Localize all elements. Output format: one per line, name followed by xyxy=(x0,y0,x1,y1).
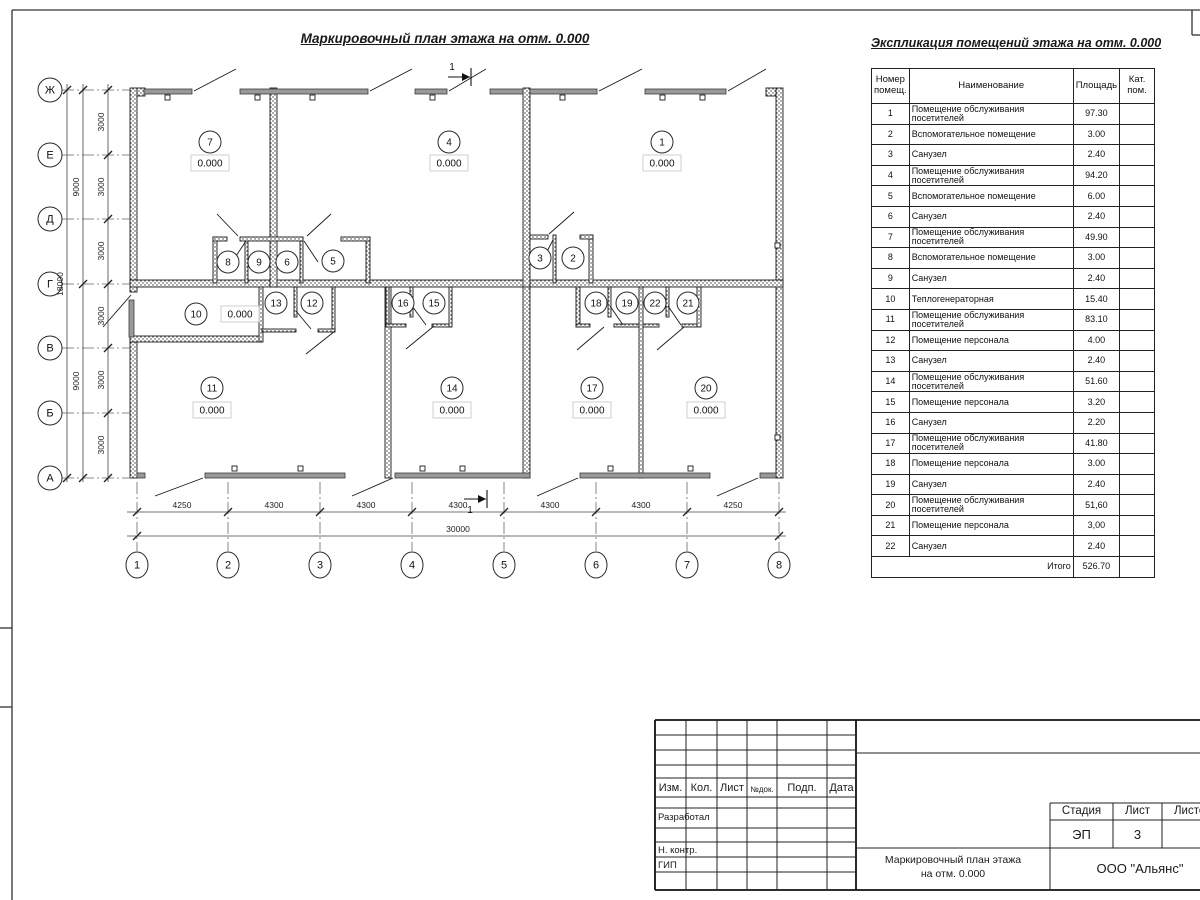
room-number-cell: 15 xyxy=(872,392,910,413)
room-area-cell: 2.40 xyxy=(1073,268,1119,289)
elevation-label: 0.000 xyxy=(649,159,674,170)
wall xyxy=(262,329,296,332)
titleblock-nkontr: Н. контр. xyxy=(658,845,697,856)
door-leaf xyxy=(103,295,131,327)
column-header-category: Кат. пом. xyxy=(1120,69,1155,104)
room-category-cell xyxy=(1120,454,1155,475)
schedule-row: 19Санузел2.40 xyxy=(872,474,1155,495)
schedule-row: 17Помещение обслуживания посетителей41.8… xyxy=(872,433,1155,454)
room-area-cell: 4.00 xyxy=(1073,330,1119,351)
door-leaf xyxy=(657,327,684,350)
wall xyxy=(259,287,263,342)
room-name-cell: Санузел xyxy=(909,145,1073,166)
wall xyxy=(523,287,530,478)
room-number-cell: 9 xyxy=(872,268,910,289)
dimension-label: 3000 xyxy=(96,112,106,131)
wall xyxy=(240,237,303,241)
room-name-cell: Помещение обслуживания посетителей xyxy=(909,227,1073,248)
column-header-name: Наименование xyxy=(909,69,1073,104)
company-name: ООО "Альянс" xyxy=(1050,861,1200,876)
total-value: 526.70 xyxy=(1073,557,1119,578)
room-category-cell xyxy=(1120,145,1155,166)
mullion xyxy=(608,466,613,471)
elevation-label: 0.000 xyxy=(439,406,464,417)
schedule-row: 13Санузел2.40 xyxy=(872,351,1155,372)
mullion xyxy=(255,95,260,100)
window-glazing xyxy=(580,473,710,478)
titleblock-data: Дата xyxy=(827,782,856,794)
dimension-label: 4300 xyxy=(632,500,651,510)
wall xyxy=(580,235,593,239)
elevation-label: 0.000 xyxy=(197,159,222,170)
room-name-cell: Помещение обслуживания посетителей xyxy=(909,371,1073,392)
mullion xyxy=(660,95,665,100)
schedule-row: 8Вспомогательное помещение3.00 xyxy=(872,248,1155,269)
room-number-cell: 21 xyxy=(872,515,910,536)
door-leaf xyxy=(599,69,642,91)
room-area-cell: 3.20 xyxy=(1073,392,1119,413)
schedule-row: 18Помещение персонала3.00 xyxy=(872,454,1155,475)
schedule-row: 6Санузел2.40 xyxy=(872,206,1155,227)
axis-label: 2 xyxy=(225,560,231,572)
room-area-cell: 2.20 xyxy=(1073,412,1119,433)
door-leaf xyxy=(217,214,238,236)
room-name-cell: Вспомогательное помещение xyxy=(909,248,1073,269)
room-number-cell: 7 xyxy=(872,227,910,248)
mullion xyxy=(430,95,435,100)
dimension-label: 4250 xyxy=(173,500,192,510)
schedule-total-row: Итого 526.70 xyxy=(872,557,1155,578)
room-number: 17 xyxy=(586,384,598,395)
wall xyxy=(449,287,452,327)
door-leaf xyxy=(307,214,331,236)
dimension-label: 18000 xyxy=(55,272,65,296)
dimension-label: 4300 xyxy=(265,500,284,510)
wall xyxy=(614,324,639,327)
schedule-row: 15Помещение персонала3.20 xyxy=(872,392,1155,413)
column-header-number: Номер помещ. xyxy=(872,69,910,104)
door-leaf xyxy=(412,306,426,325)
room-number-cell: 4 xyxy=(872,165,910,186)
schedule-row: 14Помещение обслуживания посетителей51.6… xyxy=(872,371,1155,392)
wall xyxy=(245,237,248,283)
axis-label: А xyxy=(46,473,54,485)
room-category-cell xyxy=(1120,474,1155,495)
window-glazing xyxy=(395,473,530,478)
titleblock-ndok: №док. xyxy=(747,785,777,794)
titleblock-podp: Подп. xyxy=(777,782,827,794)
room-name-cell: Санузел xyxy=(909,351,1073,372)
room-number: 5 xyxy=(330,257,336,268)
dimension-label: 4300 xyxy=(541,500,560,510)
mullion xyxy=(688,466,693,471)
room-name-cell: Помещение персонала xyxy=(909,392,1073,413)
titleblock-list: Лист xyxy=(717,782,747,794)
schedule-row: 7Помещение обслуживания посетителей49.90 xyxy=(872,227,1155,248)
door-leaf xyxy=(549,212,574,234)
room-area-cell: 41.80 xyxy=(1073,433,1119,454)
window-glazing xyxy=(415,89,447,94)
window-glazing xyxy=(144,89,192,94)
axis-label: 6 xyxy=(593,560,599,572)
axis-label: Б xyxy=(46,408,53,420)
schedule-row: 11Помещение обслуживания посетителей83.1… xyxy=(872,309,1155,330)
mullion xyxy=(232,466,237,471)
wall xyxy=(294,287,297,317)
elevation-label: 0.000 xyxy=(693,406,718,417)
room-area-cell: 51.60 xyxy=(1073,371,1119,392)
room-area-cell: 83.10 xyxy=(1073,309,1119,330)
room-number-cell: 19 xyxy=(872,474,910,495)
room-number-cell: 6 xyxy=(872,206,910,227)
room-name-cell: Санузел xyxy=(909,412,1073,433)
room-area-cell: 94.20 xyxy=(1073,165,1119,186)
room-category-cell xyxy=(1120,351,1155,372)
room-schedule-table: Номер помещ. Наименование Площадь Кат. п… xyxy=(871,68,1155,578)
mullion xyxy=(560,95,565,100)
wall xyxy=(130,337,137,478)
wall xyxy=(639,287,643,478)
dimension-label: 3000 xyxy=(96,306,106,325)
window-glazing xyxy=(530,89,597,94)
mullion xyxy=(775,243,780,248)
wall xyxy=(213,237,217,283)
plan-title: Маркировочный план этажа на отм. 0.000 xyxy=(250,31,640,46)
room-area-cell: 2.40 xyxy=(1073,206,1119,227)
axis-label: Ж xyxy=(45,85,55,97)
mullion xyxy=(700,95,705,100)
room-category-cell xyxy=(1120,495,1155,516)
room-area-cell: 2.40 xyxy=(1073,536,1119,557)
room-category-cell xyxy=(1120,371,1155,392)
mullion xyxy=(310,95,315,100)
room-number: 12 xyxy=(306,299,318,310)
room-number-cell: 10 xyxy=(872,289,910,310)
door-leaf xyxy=(717,478,758,496)
room-number: 14 xyxy=(446,384,458,395)
schedule-row: 22Санузел2.40 xyxy=(872,536,1155,557)
door-leaf xyxy=(577,327,604,350)
elevation-label: 0.000 xyxy=(227,310,252,321)
room-number: 18 xyxy=(590,299,602,310)
door-leaf xyxy=(155,478,203,496)
room-number-cell: 11 xyxy=(872,309,910,330)
axis-label: 5 xyxy=(501,560,507,572)
axis-label: 3 xyxy=(317,560,323,572)
room-area-cell: 3,00 xyxy=(1073,515,1119,536)
window-glazing xyxy=(205,473,345,478)
wall xyxy=(318,329,335,332)
door-leaf xyxy=(352,478,393,496)
room-area-cell: 3.00 xyxy=(1073,124,1119,145)
room-area-cell: 49.90 xyxy=(1073,227,1119,248)
door-leaf xyxy=(370,69,412,91)
room-number: 22 xyxy=(649,299,661,310)
room-number-cell: 14 xyxy=(872,371,910,392)
room-number: 20 xyxy=(700,384,712,395)
wall xyxy=(432,324,449,327)
room-number: 10 xyxy=(190,310,202,321)
door-leaf xyxy=(306,331,335,354)
dimension-label: 3000 xyxy=(96,370,106,389)
wall xyxy=(766,88,776,96)
schedule-row: 10Теплогенераторная15.40 xyxy=(872,289,1155,310)
room-name-cell: Санузел xyxy=(909,206,1073,227)
dimension-label: 9000 xyxy=(71,371,81,390)
room-area-cell: 97.30 xyxy=(1073,104,1119,125)
wall xyxy=(386,287,389,327)
wall xyxy=(341,237,370,241)
room-name-cell: Санузел xyxy=(909,536,1073,557)
wall xyxy=(553,235,556,283)
wall xyxy=(270,88,277,287)
door-leaf xyxy=(406,326,434,349)
room-number: 9 xyxy=(256,258,262,269)
schedule-row: 9Санузел2.40 xyxy=(872,268,1155,289)
room-category-cell xyxy=(1120,186,1155,207)
schedule-row: 5Вспомогательное помещение6.00 xyxy=(872,186,1155,207)
dimension-label: 30000 xyxy=(446,524,470,534)
section-mark-arrow xyxy=(462,73,470,81)
room-category-cell xyxy=(1120,309,1155,330)
stage-value: ЭП xyxy=(1050,827,1113,842)
room-category-cell xyxy=(1120,515,1155,536)
wall xyxy=(682,324,697,327)
schedule-row: 21Помещение персонала3,00 xyxy=(872,515,1155,536)
titleblock-gip: ГИП xyxy=(658,860,677,871)
wall xyxy=(576,324,590,327)
dimension-label: 4300 xyxy=(357,500,376,510)
room-number: 2 xyxy=(570,254,576,265)
room-number-cell: 13 xyxy=(872,351,910,372)
room-number-cell: 2 xyxy=(872,124,910,145)
room-number-cell: 3 xyxy=(872,145,910,166)
elevation-label: 0.000 xyxy=(436,159,461,170)
room-number-cell: 17 xyxy=(872,433,910,454)
room-number-cell: 22 xyxy=(872,536,910,557)
room-name-cell: Вспомогательное помещение xyxy=(909,124,1073,145)
room-number-cell: 8 xyxy=(872,248,910,269)
wall xyxy=(608,287,611,317)
schedule-row: 16Санузел2.20 xyxy=(872,412,1155,433)
room-number: 11 xyxy=(207,384,218,395)
room-number: 13 xyxy=(270,299,282,310)
door-leaf xyxy=(194,69,236,91)
room-category-cell xyxy=(1120,104,1155,125)
window-glazing xyxy=(490,89,523,94)
room-category-cell xyxy=(1120,433,1155,454)
room-number: 21 xyxy=(682,299,694,310)
axis-label: Д xyxy=(46,214,54,226)
room-number: 3 xyxy=(537,254,543,265)
axis-label: 1 xyxy=(134,560,140,572)
room-number-cell: 18 xyxy=(872,454,910,475)
titleblock-izm: Изм. xyxy=(655,782,686,794)
drawing-sheet: { "plan": { "title": "Маркировочный план… xyxy=(0,0,1200,900)
mullion xyxy=(165,95,170,100)
room-number-cell: 12 xyxy=(872,330,910,351)
schedule-header-row: Номер помещ. Наименование Площадь Кат. п… xyxy=(872,69,1155,104)
door-leaf xyxy=(304,241,318,262)
room-area-cell: 2.40 xyxy=(1073,145,1119,166)
doc-title-line2: на отм. 0.000 xyxy=(856,868,1050,880)
room-area-cell: 15.40 xyxy=(1073,289,1119,310)
room-number: 6 xyxy=(284,258,290,269)
room-name-cell: Помещение обслуживания посетителей xyxy=(909,433,1073,454)
total-category-cell xyxy=(1120,557,1155,578)
room-category-cell xyxy=(1120,268,1155,289)
room-category-cell xyxy=(1120,248,1155,269)
room-number-cell: 20 xyxy=(872,495,910,516)
section-mark-arrow xyxy=(478,495,486,503)
room-name-cell: Санузел xyxy=(909,268,1073,289)
room-name-cell: Помещение обслуживания посетителей xyxy=(909,165,1073,186)
room-category-cell xyxy=(1120,536,1155,557)
room-category-cell xyxy=(1120,392,1155,413)
wall xyxy=(130,280,783,287)
schedule-title: Экспликация помещений этажа на отм. 0.00… xyxy=(871,36,1146,50)
room-name-cell: Помещение персонала xyxy=(909,454,1073,475)
dimension-label: 3000 xyxy=(96,241,106,260)
room-name-cell: Санузел xyxy=(909,474,1073,495)
room-name-cell: Помещение обслуживания посетителей xyxy=(909,309,1073,330)
axis-label: 8 xyxy=(776,560,782,572)
mullion xyxy=(298,466,303,471)
axis-label: 4 xyxy=(409,560,415,572)
room-category-cell xyxy=(1120,330,1155,351)
room-name-cell: Помещение персонала xyxy=(909,330,1073,351)
room-name-cell: Помещение обслуживания посетителей xyxy=(909,495,1073,516)
mullion xyxy=(460,466,465,471)
door-leaf xyxy=(537,478,578,496)
axis-label: Е xyxy=(46,150,53,162)
schedule-row: 20Помещение обслуживания посетителей51,6… xyxy=(872,495,1155,516)
wall xyxy=(589,235,593,283)
wall xyxy=(130,88,137,292)
room-area-cell: 2.40 xyxy=(1073,474,1119,495)
room-area-cell: 3.00 xyxy=(1073,248,1119,269)
sheet-label: Лист xyxy=(1113,805,1162,817)
room-area-cell: 51,60 xyxy=(1073,495,1119,516)
sheets-label: Листов xyxy=(1162,805,1200,817)
titleblock-kol: Кол. xyxy=(686,782,717,794)
dimension-label: 3000 xyxy=(96,435,106,454)
elevation-label: 0.000 xyxy=(199,406,224,417)
dimension-label: 9000 xyxy=(71,177,81,196)
mullion xyxy=(775,435,780,440)
section-mark-label: 1 xyxy=(449,62,455,73)
elevation-label: 0.000 xyxy=(579,406,604,417)
room-number: 7 xyxy=(207,138,213,149)
window-glazing xyxy=(760,473,776,478)
schedule-row: 1Помещение обслуживания посетителей97.30 xyxy=(872,104,1155,125)
column-header-area: Площадь xyxy=(1073,69,1119,104)
doc-title-line1: Маркировочный план этажа xyxy=(856,854,1050,866)
wall xyxy=(300,237,303,283)
wall xyxy=(366,237,370,283)
dimension-label: 4250 xyxy=(724,500,743,510)
room-number: 16 xyxy=(397,299,409,310)
axis-label: Г xyxy=(47,279,53,291)
door-leaf xyxy=(728,69,766,91)
axis-label: В xyxy=(46,343,53,355)
room-number-cell: 5 xyxy=(872,186,910,207)
wall xyxy=(530,235,548,239)
room-name-cell: Помещение обслуживания посетителей xyxy=(909,104,1073,125)
wall xyxy=(213,237,227,241)
sheet-number: 3 xyxy=(1113,827,1162,842)
section-mark-label: 1 xyxy=(467,505,473,516)
room-number: 19 xyxy=(621,299,633,310)
room-category-cell xyxy=(1120,165,1155,186)
room-number: 4 xyxy=(446,138,452,149)
room-name-cell: Помещение персонала xyxy=(909,515,1073,536)
room-category-cell xyxy=(1120,124,1155,145)
schedule-row: 4Помещение обслуживания посетителей94.20 xyxy=(872,165,1155,186)
schedule-row: 3Санузел2.40 xyxy=(872,145,1155,166)
window-glazing xyxy=(645,89,726,94)
dimension-label: 4300 xyxy=(449,500,468,510)
room-number-cell: 16 xyxy=(872,412,910,433)
room-number-cell: 1 xyxy=(872,104,910,125)
stage-label: Стадия xyxy=(1050,805,1113,817)
room-area-cell: 3.00 xyxy=(1073,454,1119,475)
schedule-row: 12Помещение персонала4.00 xyxy=(872,330,1155,351)
room-area-cell: 2.40 xyxy=(1073,351,1119,372)
entrance-door-panel xyxy=(129,300,134,337)
titleblock-razrabotal: Разработал xyxy=(658,812,710,823)
room-category-cell xyxy=(1120,289,1155,310)
room-area-cell: 6.00 xyxy=(1073,186,1119,207)
window-glazing xyxy=(137,473,145,478)
wall xyxy=(332,287,335,332)
wall xyxy=(576,287,580,327)
wall xyxy=(643,324,659,327)
total-label: Итого xyxy=(872,557,1074,578)
room-category-cell xyxy=(1120,412,1155,433)
room-number: 15 xyxy=(428,299,440,310)
wall xyxy=(130,336,262,342)
room-name-cell: Теплогенераторная xyxy=(909,289,1073,310)
axis-label: 7 xyxy=(684,560,690,572)
dimension-label: 3000 xyxy=(96,177,106,196)
wall xyxy=(386,324,406,327)
room-name-cell: Вспомогательное помещение xyxy=(909,186,1073,207)
schedule-row: 2Вспомогательное помещение3.00 xyxy=(872,124,1155,145)
room-number: 8 xyxy=(225,258,231,269)
room-number: 1 xyxy=(659,138,665,149)
window-glazing xyxy=(240,89,368,94)
mullion xyxy=(420,466,425,471)
room-category-cell xyxy=(1120,227,1155,248)
room-category-cell xyxy=(1120,206,1155,227)
